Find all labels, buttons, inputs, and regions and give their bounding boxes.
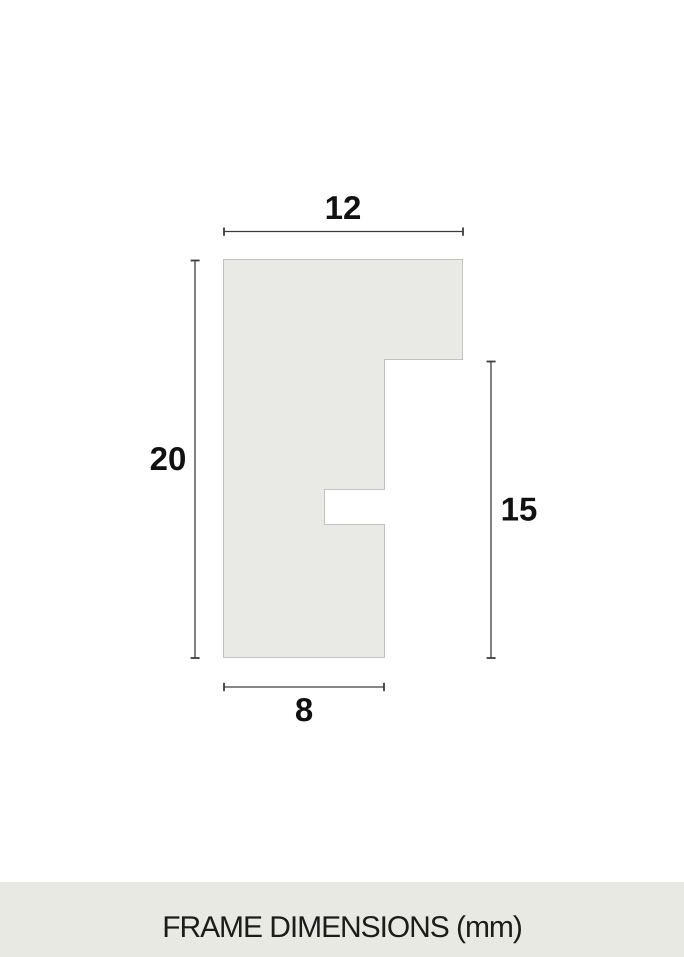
svg-text:FRAME DIMENSIONS (mm): FRAME DIMENSIONS (mm) (162, 911, 522, 944)
svg-text:8: 8 (295, 691, 313, 728)
svg-text:12: 12 (325, 189, 362, 226)
svg-text:20: 20 (150, 440, 187, 477)
svg-text:15: 15 (501, 491, 538, 528)
